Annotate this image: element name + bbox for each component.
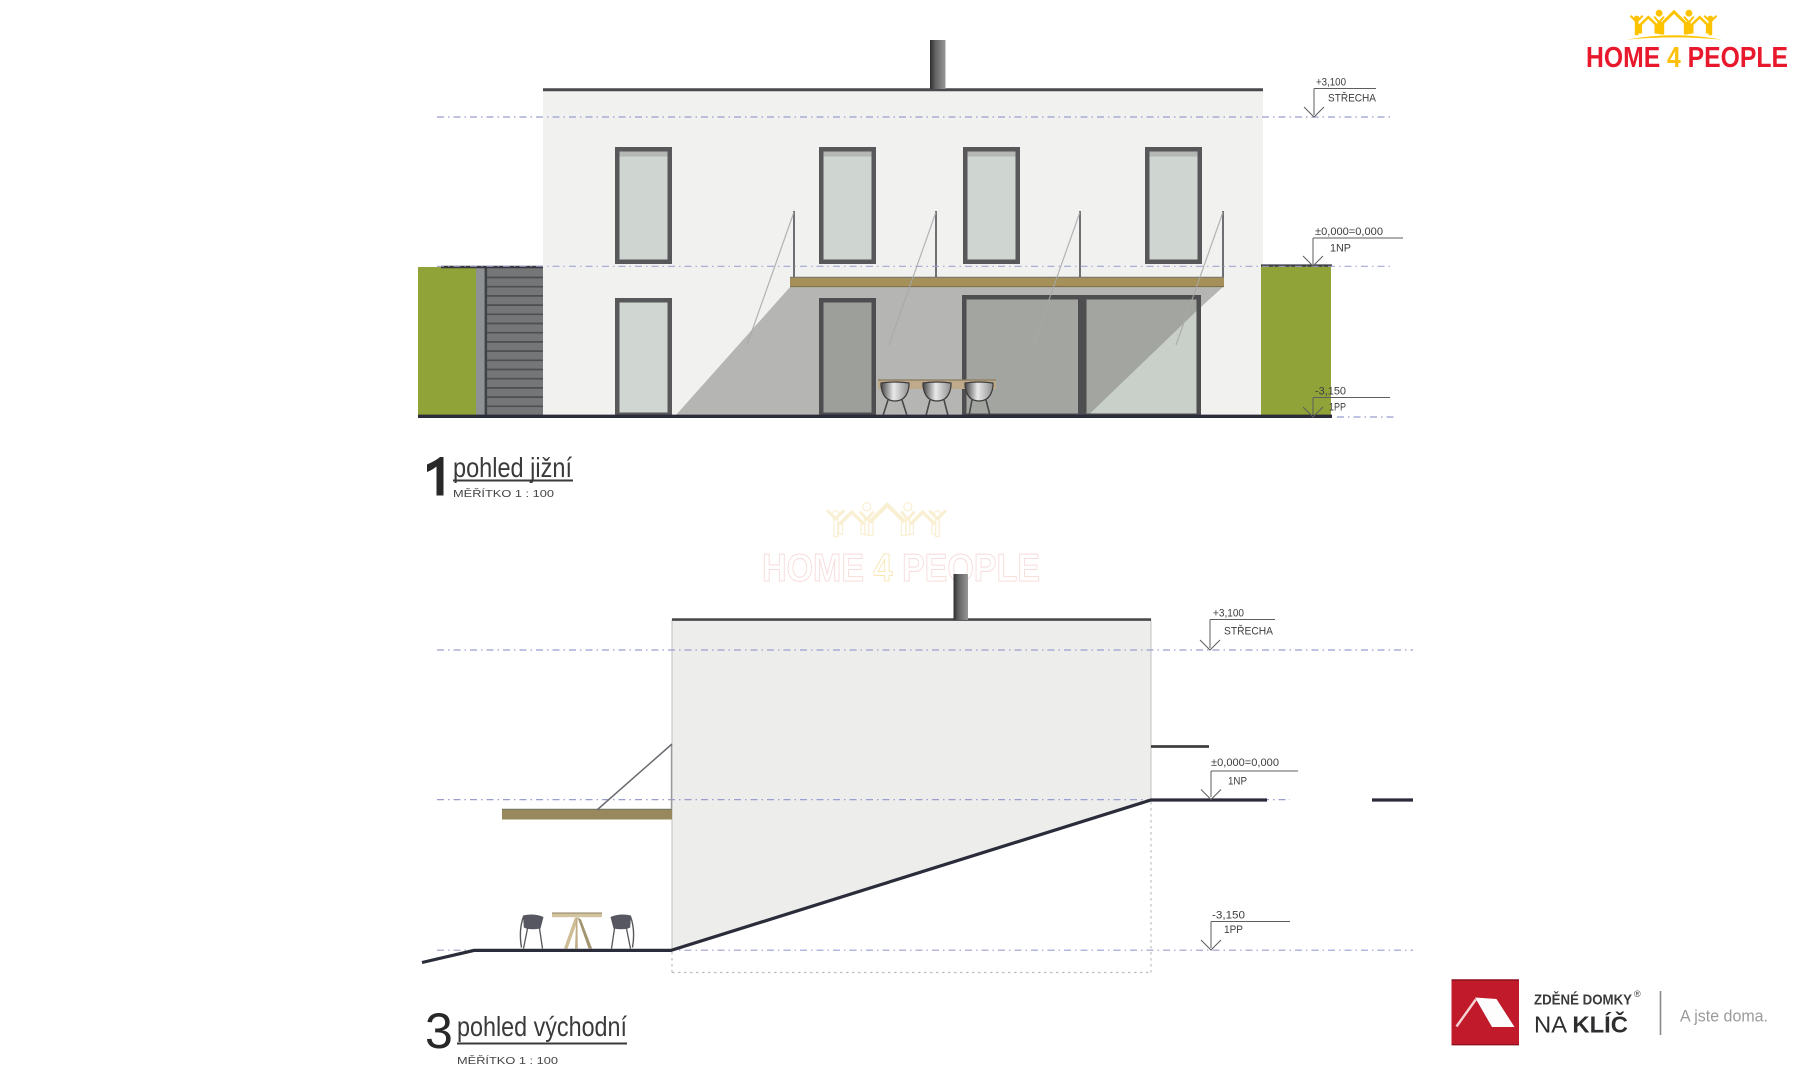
- svg-text:1NP: 1NP: [1228, 776, 1247, 788]
- svg-text:1NP: 1NP: [1330, 243, 1351, 255]
- svg-text:MĚŘÍTKO 1 : 100: MĚŘÍTKO 1 : 100: [457, 1054, 558, 1067]
- svg-text:STŘECHA: STŘECHA: [1224, 625, 1274, 638]
- svg-text:±0,000=0,000: ±0,000=0,000: [1211, 757, 1279, 769]
- svg-text:1PP: 1PP: [1329, 402, 1346, 414]
- svg-text:HOME 4 PEOPLE: HOME 4 PEOPLE: [762, 547, 1040, 590]
- svg-text:NA KLÍČ: NA KLÍČ: [1534, 1011, 1628, 1038]
- svg-text:pohled jižní: pohled jižní: [453, 452, 572, 483]
- svg-text:+3,100: +3,100: [1316, 77, 1346, 89]
- svg-text:-3,150: -3,150: [1315, 386, 1346, 398]
- svg-text:3: 3: [425, 1003, 453, 1059]
- svg-text:1PP: 1PP: [1224, 924, 1243, 936]
- svg-text:-3,150: -3,150: [1212, 910, 1245, 922]
- svg-text:®: ®: [1634, 989, 1641, 999]
- svg-text:MĚŘÍTKO 1 : 100: MĚŘÍTKO 1 : 100: [453, 487, 554, 500]
- svg-text:STŘECHA: STŘECHA: [1328, 92, 1377, 105]
- svg-text:+3,100: +3,100: [1213, 608, 1244, 620]
- svg-text:A jste doma.: A jste doma.: [1680, 1007, 1768, 1026]
- svg-text:±0,000=0,000: ±0,000=0,000: [1315, 226, 1383, 238]
- svg-text:HOME 4 PEOPLE: HOME 4 PEOPLE: [1586, 42, 1788, 74]
- svg-text:ZDĚNÉ DOMKY: ZDĚNÉ DOMKY: [1534, 991, 1632, 1009]
- svg-text:pohled východní: pohled východní: [457, 1011, 627, 1042]
